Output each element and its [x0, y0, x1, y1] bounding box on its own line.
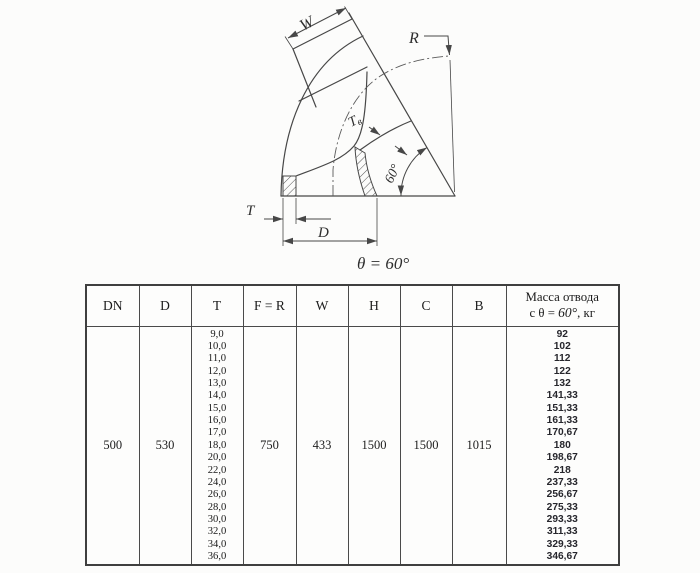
cell-d: 530: [139, 326, 191, 565]
wall-section-band-hatch: [355, 147, 377, 196]
radius-label: R: [408, 30, 419, 47]
radius-leader: [424, 36, 450, 55]
cell-dn: 500: [86, 326, 139, 565]
table-data-row: 500 530 9,0 10,0 11,0 12,0 13,0 14,0 15,…: [86, 326, 619, 565]
cell-t-values: 9,0 10,0 11,0 12,0 13,0 14,0 15,0 16,0 1…: [191, 326, 243, 565]
header-c: C: [400, 285, 452, 326]
cell-w: 433: [296, 326, 348, 565]
t-extension-lines: [283, 198, 296, 246]
cell-c: 1500: [400, 326, 452, 565]
elbow-spec-table: DN D T F = R W H C B Масса отвода с θ = …: [85, 284, 620, 566]
tv-leader-2: [395, 146, 407, 155]
t-label: T: [246, 203, 256, 219]
cell-b: 1015: [452, 326, 506, 565]
radius-extension: [450, 60, 455, 192]
scanned-catalog-page: W R Tв 60° T D θ = 60° DN D T F = R W H …: [0, 0, 700, 573]
table-header-row: DN D T F = R W H C B Масса отвода с θ = …: [86, 285, 619, 326]
header-f-r: F = R: [243, 285, 296, 326]
header-b: B: [452, 285, 506, 326]
header-t: T: [191, 285, 243, 326]
header-h: H: [348, 285, 400, 326]
mass-header-line2: с θ = 60°, кг: [507, 305, 619, 321]
w-dim-line: [288, 8, 346, 38]
elbow-outline: [281, 13, 455, 196]
w-extension-lines: [285, 7, 352, 50]
header-mass: Масса отвода с θ = 60°, кг: [506, 285, 619, 326]
header-dn: DN: [86, 285, 139, 326]
wall-section-left-hatch: [283, 176, 296, 196]
cell-mass-values: 92 102 112 122 132 141,33 151,33 161,33 …: [506, 326, 619, 565]
header-d: D: [139, 285, 191, 326]
header-w: W: [296, 285, 348, 326]
inner-arc: [360, 121, 411, 150]
tangent-junction-line: [299, 67, 367, 101]
cell-h: 1500: [348, 326, 400, 565]
tv-leader-1: [369, 127, 380, 135]
angle-label: 60°: [381, 161, 403, 185]
angle-arc: [401, 148, 427, 196]
figure-caption: θ = 60°: [357, 254, 409, 273]
d-label: D: [317, 225, 329, 241]
elbow-dimension-drawing: W R Tв 60° T D θ = 60°: [0, 0, 700, 283]
cell-f-r: 750: [243, 326, 296, 565]
mass-header-line1: Масса отвода: [507, 290, 619, 305]
